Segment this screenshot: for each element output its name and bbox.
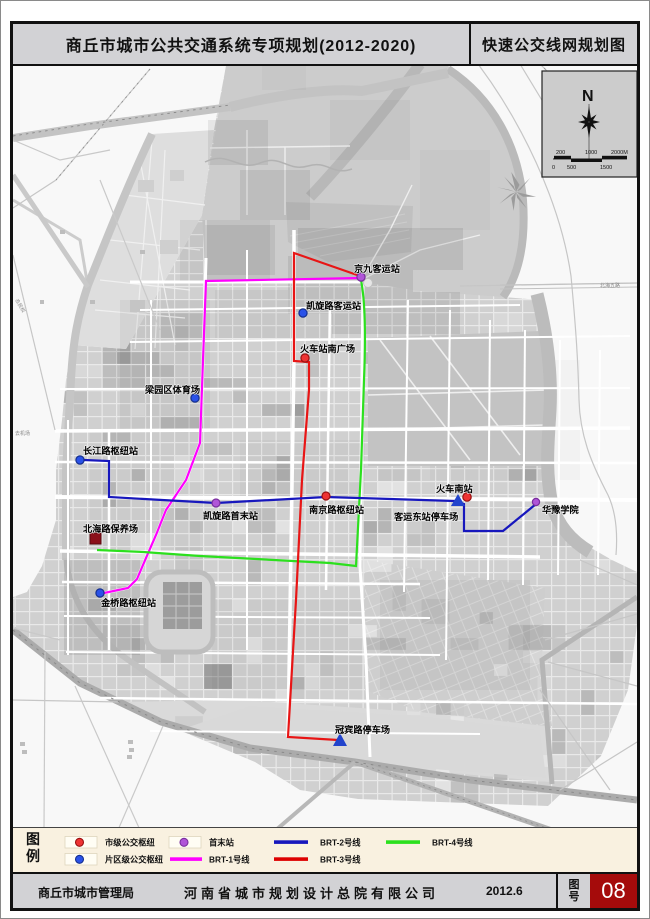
- svg-text:1500: 1500: [600, 165, 612, 171]
- svg-text:500: 500: [567, 165, 576, 171]
- svg-text:200: 200: [556, 150, 565, 156]
- svg-text:BRT-4号线: BRT-4号线: [432, 838, 473, 848]
- svg-text:去机场: 去机场: [15, 430, 30, 437]
- svg-text:2000M: 2000M: [611, 150, 628, 156]
- svg-text:华豫学院: 华豫学院: [542, 504, 580, 515]
- svg-text:北海路保养场: 北海路保养场: [83, 523, 138, 534]
- svg-text:凯旋路首末站: 凯旋路首末站: [203, 510, 259, 521]
- svg-text:冠宾路停车场: 冠宾路停车场: [335, 724, 390, 735]
- svg-text:片区级公交枢纽: 片区级公交枢纽: [105, 855, 164, 865]
- svg-text:市级公交枢纽: 市级公交枢纽: [105, 838, 155, 848]
- svg-text:BRT-1号线: BRT-1号线: [209, 855, 250, 865]
- svg-text:首末站: 首末站: [209, 838, 235, 848]
- svg-text:京九客运站: 京九客运站: [354, 263, 401, 274]
- svg-text:0: 0: [552, 165, 555, 171]
- svg-text:1000: 1000: [585, 150, 597, 156]
- svg-text:火车南站: 火车南站: [436, 483, 474, 494]
- svg-text:梁园区体育场: 梁园区体育场: [144, 384, 200, 395]
- svg-text:长江路枢纽站: 长江路枢纽站: [83, 445, 139, 456]
- svg-text:北海五路: 北海五路: [600, 282, 620, 289]
- svg-text:BRT-3号线: BRT-3号线: [320, 855, 361, 865]
- svg-text:BRT-2号线: BRT-2号线: [320, 838, 361, 848]
- svg-text:金桥路枢纽站: 金桥路枢纽站: [100, 597, 157, 608]
- svg-text:客运东站停车场: 客运东站停车场: [393, 511, 458, 522]
- svg-text:凯旋路客运站: 凯旋路客运站: [306, 300, 362, 311]
- svg-text:南京路枢纽站: 南京路枢纽站: [309, 504, 365, 515]
- svg-text:火车站南广场: 火车站南广场: [300, 343, 355, 354]
- svg-text:N: N: [582, 88, 594, 105]
